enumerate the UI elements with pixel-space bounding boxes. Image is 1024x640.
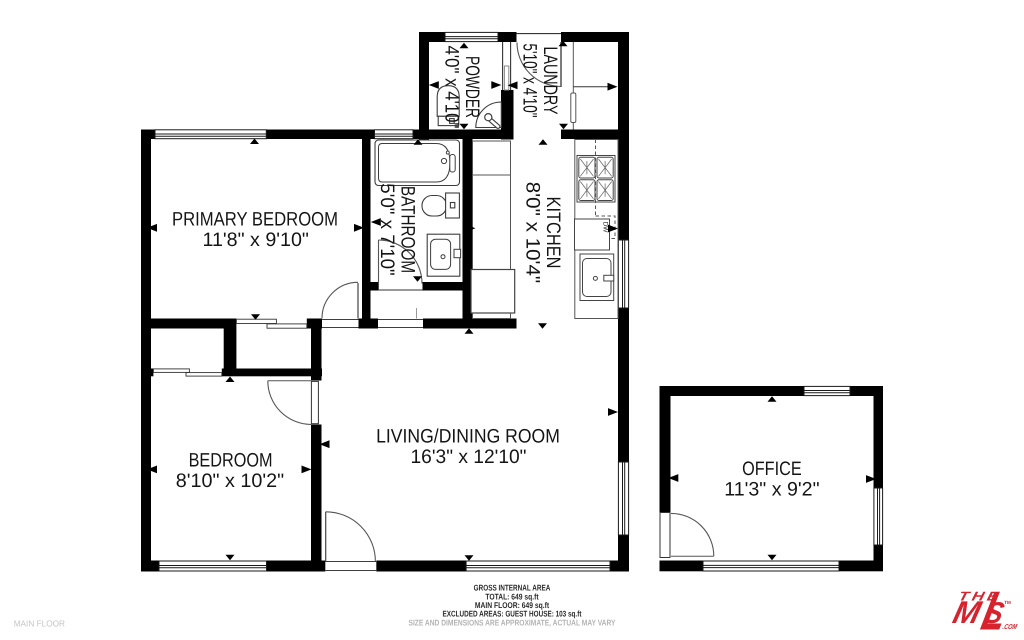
svg-text:LAUNDRY: LAUNDRY: [539, 47, 561, 115]
svg-text:BEDROOM: BEDROOM: [189, 450, 273, 472]
svg-text:POWDER: POWDER: [461, 56, 483, 118]
svg-text:LIVING/DINING ROOM: LIVING/DINING ROOM: [376, 426, 560, 448]
svg-text:4'0" x 4'10": 4'0" x 4'10": [440, 46, 462, 129]
svg-text:5'0" x 7'10": 5'0" x 7'10": [376, 183, 398, 275]
svg-text:5'10" x 4'10": 5'10" x 4'10": [519, 44, 541, 118]
svg-text:8'0" x 10'4": 8'0" x 10'4": [522, 182, 544, 284]
svg-text:DW: DW: [602, 222, 609, 234]
svg-text:KITCHEN: KITCHEN: [542, 197, 564, 269]
svg-text:8'10" x 10'2": 8'10" x 10'2": [176, 470, 284, 492]
svg-text:BATHROOM: BATHROOM: [397, 186, 419, 273]
svg-text:11'8" x 9'10": 11'8" x 9'10": [203, 229, 309, 251]
svg-text:SIZE AND DIMENSIONS ARE APPROX: SIZE AND DIMENSIONS ARE APPROXIMATE, ACT…: [409, 618, 616, 628]
svg-text:TM: TM: [1004, 600, 1011, 605]
svg-text:PRIMARY BEDROOM: PRIMARY BEDROOM: [172, 208, 338, 230]
svg-text:OFFICE: OFFICE: [742, 458, 802, 480]
svg-text:MAIN FLOOR: MAIN FLOOR: [14, 619, 65, 629]
svg-text:11'3" x 9'2": 11'3" x 9'2": [724, 478, 819, 500]
svg-text:16'3" x 12'10": 16'3" x 12'10": [411, 446, 527, 468]
